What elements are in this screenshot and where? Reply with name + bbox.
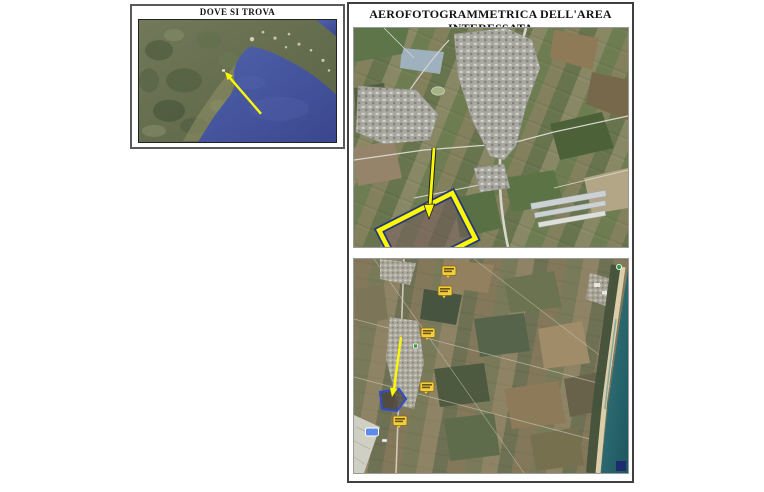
road-badge-icon	[366, 428, 379, 436]
place-label-icon	[393, 416, 407, 429]
aero-map-upper-art	[354, 28, 628, 247]
place-label-icon	[421, 328, 435, 341]
site-arrow-icon	[424, 148, 435, 219]
locator-map-art	[139, 20, 336, 142]
locator-title: DOVE SI TROVA	[132, 7, 343, 18]
green-marker-icon	[414, 344, 418, 348]
place-label-icon	[420, 382, 434, 395]
locator-panel: DOVE SI TROVA	[130, 4, 345, 149]
aero-panel: AEROFOTOGRAMMETRICA DELL'AREA INTERESSAT…	[347, 2, 634, 483]
greenhouse-area	[354, 415, 380, 473]
stadium	[432, 87, 445, 95]
site-town-dot	[222, 69, 225, 71]
locator-map	[138, 19, 337, 143]
green-pin-icon	[616, 264, 621, 269]
aero-map-upper	[353, 27, 629, 248]
aero-map-lower	[353, 258, 629, 474]
white-marker-icon	[382, 439, 387, 442]
aero-map-lower-art	[354, 259, 628, 473]
map-corner-square	[616, 461, 626, 471]
page: DOVE SI TROVA	[0, 0, 764, 492]
